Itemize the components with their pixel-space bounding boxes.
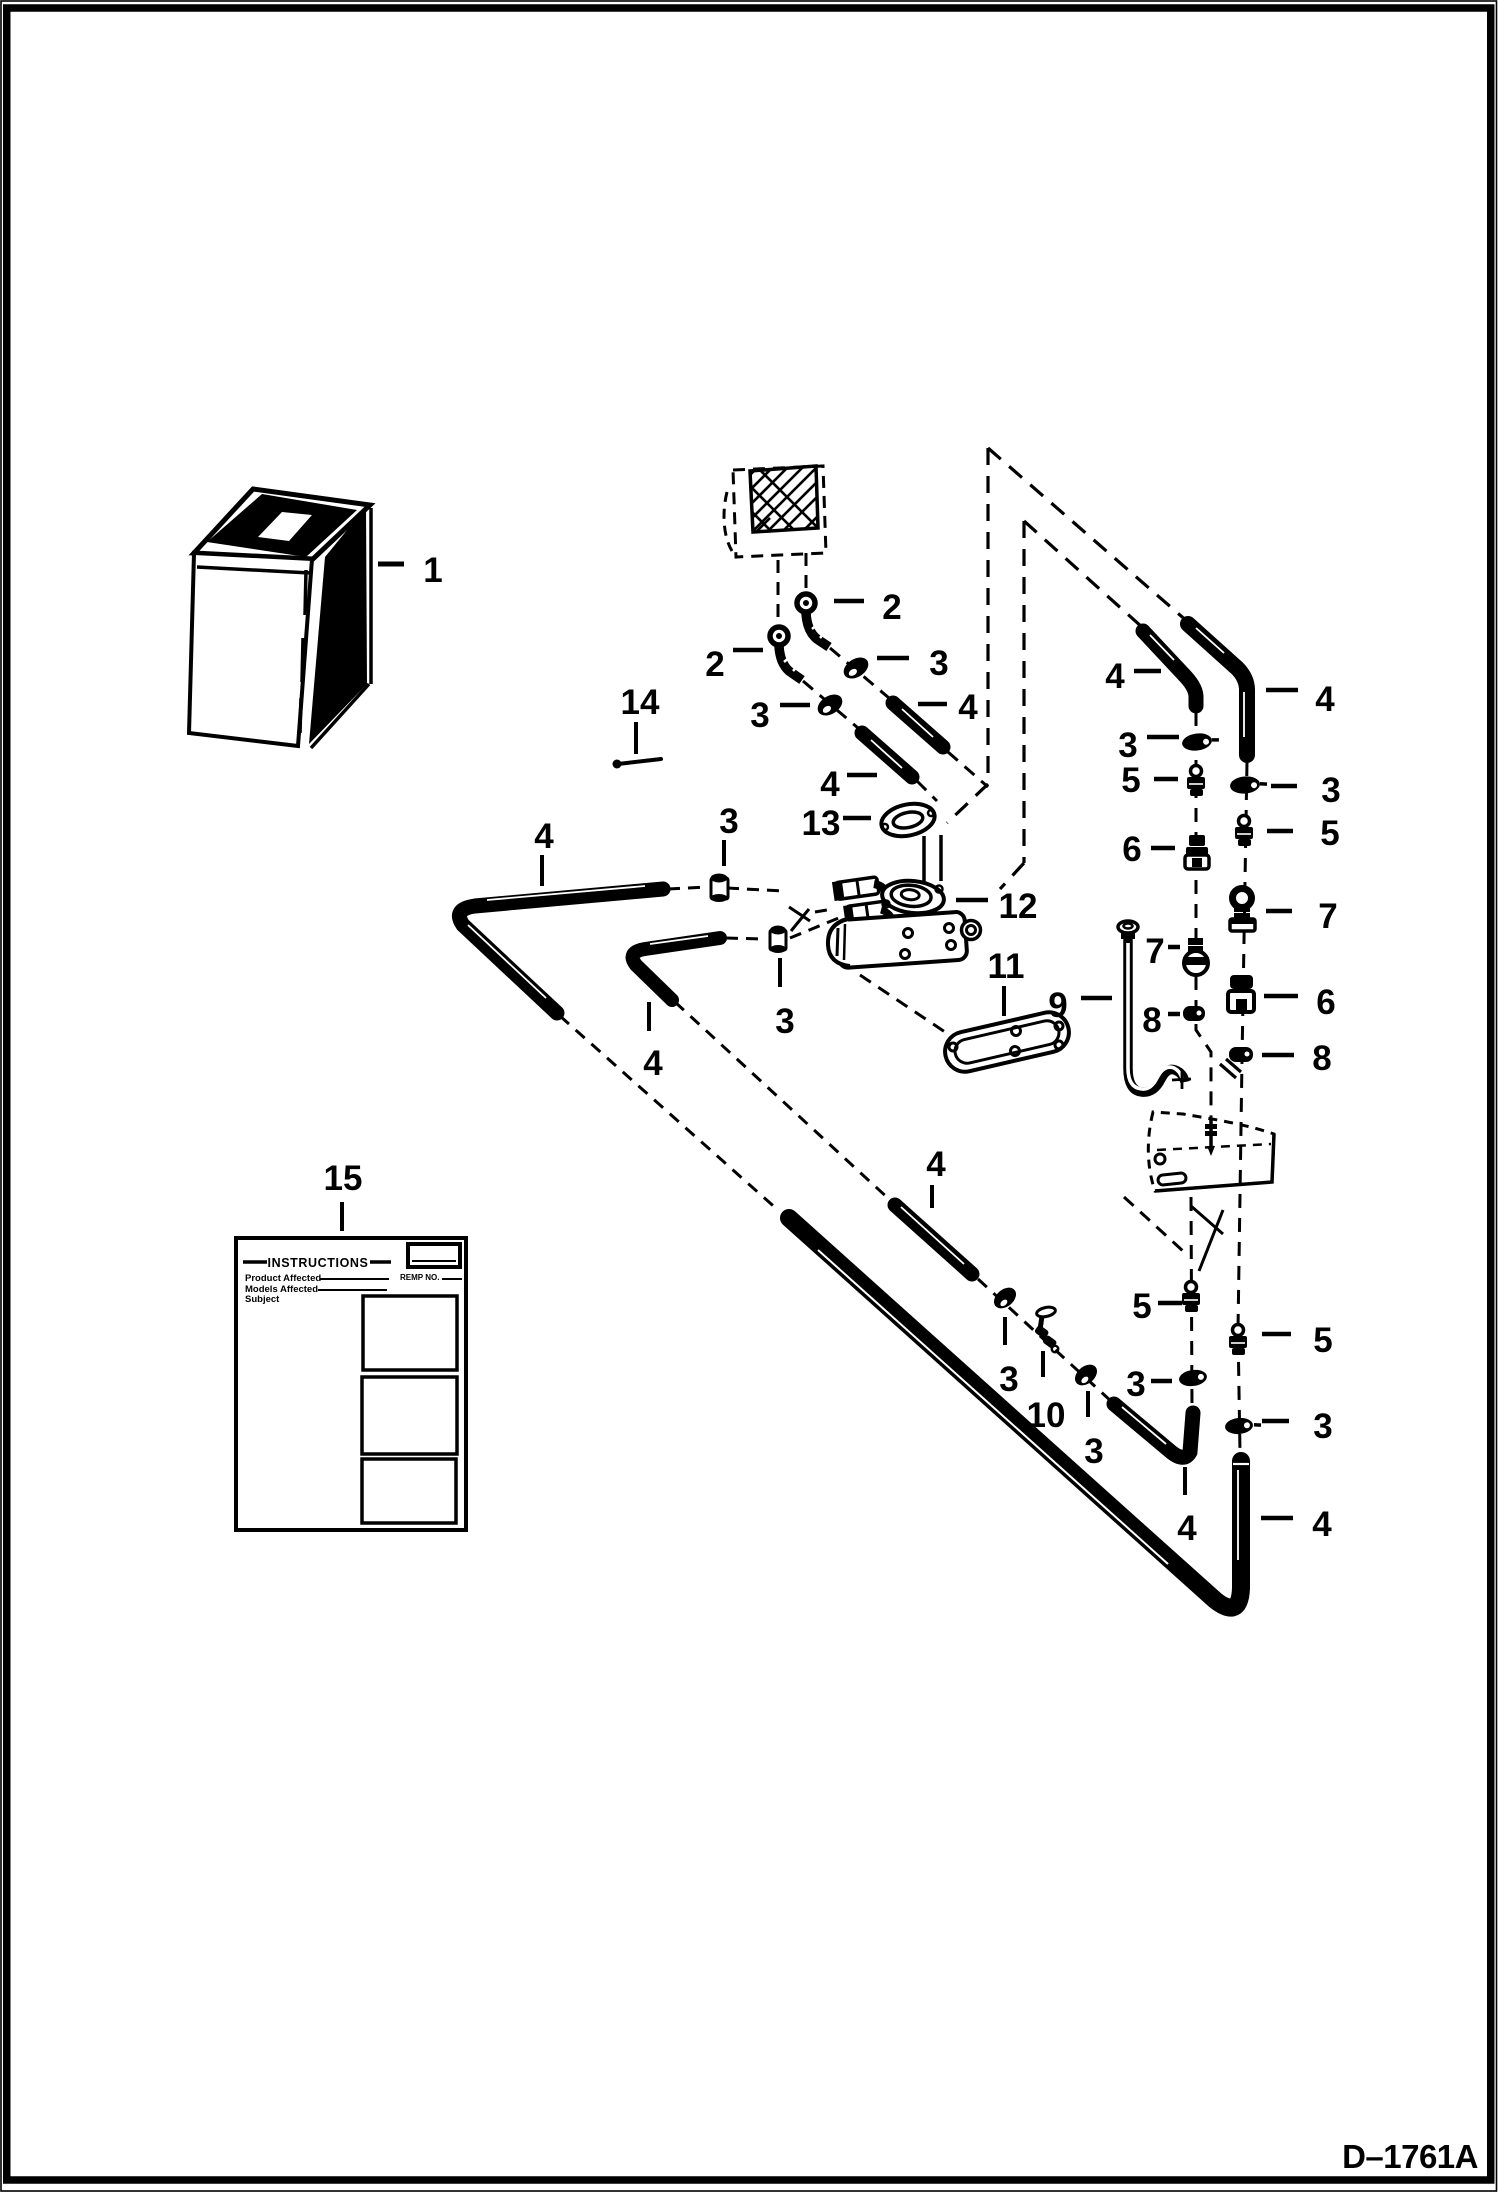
- svg-text:REMP NO.: REMP NO.: [400, 1273, 439, 1282]
- svg-text:INSTRUCTIONS: INSTRUCTIONS: [268, 1256, 369, 1270]
- svg-text:4: 4: [1105, 657, 1125, 696]
- svg-text:Product Affected: Product Affected: [245, 1273, 321, 1284]
- svg-text:3: 3: [750, 696, 769, 735]
- svg-text:15: 15: [324, 1159, 363, 1198]
- svg-text:3: 3: [999, 1360, 1018, 1399]
- svg-text:3: 3: [1118, 726, 1137, 765]
- svg-text:3: 3: [719, 802, 738, 841]
- svg-text:7: 7: [1318, 897, 1337, 936]
- svg-text:4: 4: [1315, 680, 1335, 719]
- svg-text:5: 5: [1313, 1321, 1332, 1360]
- svg-text:6: 6: [1122, 830, 1141, 869]
- svg-text:5: 5: [1132, 1287, 1151, 1326]
- svg-text:5: 5: [1320, 814, 1339, 853]
- svg-text:1: 1: [423, 551, 442, 590]
- svg-text:2: 2: [705, 645, 724, 684]
- svg-text:3: 3: [929, 644, 948, 683]
- svg-text:4: 4: [1177, 1509, 1197, 1548]
- svg-text:14: 14: [621, 683, 660, 722]
- svg-text:4: 4: [958, 688, 978, 727]
- svg-text:5: 5: [1121, 761, 1140, 800]
- svg-text:4: 4: [1312, 1505, 1332, 1544]
- svg-text:3: 3: [775, 1002, 794, 1041]
- svg-text:2: 2: [882, 588, 901, 627]
- svg-text:8: 8: [1312, 1039, 1331, 1078]
- svg-text:3: 3: [1126, 1365, 1145, 1404]
- svg-text:8: 8: [1142, 1001, 1161, 1040]
- svg-text:4: 4: [643, 1044, 663, 1083]
- svg-text:4: 4: [534, 817, 554, 856]
- svg-text:9: 9: [1048, 986, 1067, 1025]
- svg-text:7: 7: [1145, 932, 1164, 971]
- svg-text:3: 3: [1313, 1407, 1332, 1446]
- svg-text:11: 11: [988, 947, 1025, 986]
- svg-text:Subject: Subject: [245, 1294, 280, 1305]
- svg-text:12: 12: [999, 887, 1038, 926]
- svg-text:3: 3: [1321, 771, 1340, 810]
- svg-text:6: 6: [1316, 983, 1335, 1022]
- svg-text:13: 13: [802, 804, 841, 843]
- svg-text:D–1761A: D–1761A: [1342, 2138, 1478, 2175]
- svg-text:4: 4: [820, 765, 840, 804]
- svg-text:3: 3: [1084, 1432, 1103, 1471]
- svg-text:4: 4: [926, 1145, 946, 1184]
